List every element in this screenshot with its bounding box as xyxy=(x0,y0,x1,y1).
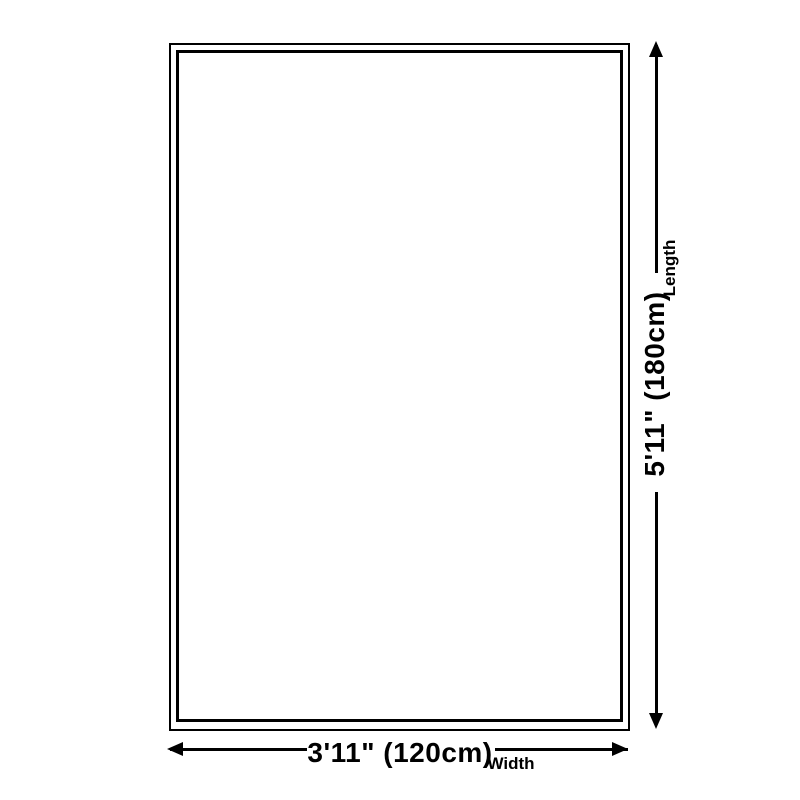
length-dimension-value: 5'11" (180cm) xyxy=(639,291,671,476)
dimension-diagram: 3'11" (120cm) Width 5'11" (180cm) Length xyxy=(0,0,800,800)
length-dimension-line-bottom-segment xyxy=(655,492,658,720)
width-dimension-line-left-segment xyxy=(170,748,307,751)
width-axis-label: Width xyxy=(487,754,534,774)
arrow-down-icon xyxy=(649,713,663,729)
length-dimension-line-top-segment xyxy=(655,45,658,273)
arrow-left-icon xyxy=(167,742,183,756)
length-axis-label: Length xyxy=(660,240,680,297)
arrow-right-icon xyxy=(612,742,628,756)
arrow-up-icon xyxy=(649,41,663,57)
width-dimension-line-right-segment xyxy=(495,748,628,751)
width-dimension-value: 3'11" (120cm) xyxy=(307,737,492,769)
product-outline-inner xyxy=(176,50,623,722)
